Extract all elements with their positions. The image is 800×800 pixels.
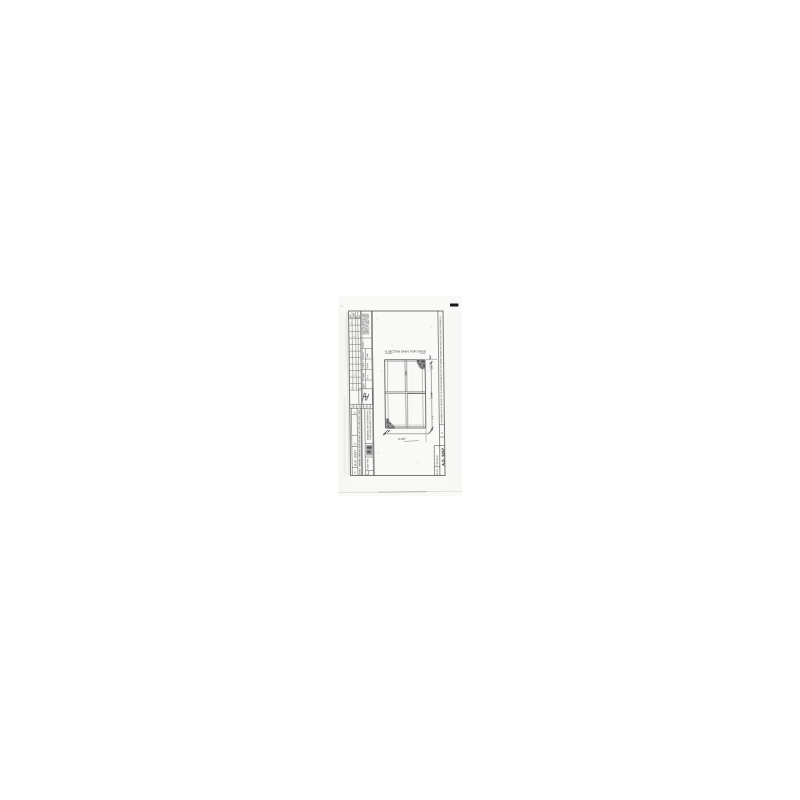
svg-text:TEAK: TEAK: [366, 353, 369, 358]
svg-text:DATE: DATE: [353, 312, 356, 318]
svg-text:SASH: SASH: [362, 382, 365, 388]
svg-text:No 2: No 2: [367, 375, 369, 379]
svg-text:3′-6⅜″: 3′-6⅜″: [431, 392, 434, 399]
svg-text:SCALE FULL: SCALE FULL: [366, 458, 369, 469]
svg-text:½ SECTION SASH, FOR STAGE: ½ SECTION SASH, FOR STAGE: [385, 350, 426, 354]
svg-text:A.S. 3267: A.S. 3267: [353, 449, 357, 466]
svg-text:7: 7: [351, 349, 353, 350]
svg-text:NO: NO: [359, 315, 361, 319]
svg-text:WOOD: WOOD: [363, 352, 365, 358]
svg-text:34 328: 34 328: [437, 469, 439, 475]
svg-text:GLASS: GLASS: [362, 362, 365, 369]
svg-text:CHA 346 43: CHA 346 43: [436, 455, 439, 465]
svg-text:PLATE: PLATE: [366, 362, 369, 368]
svg-text:3: 3: [354, 375, 356, 376]
svg-text:3⅛: 3⅛: [432, 366, 434, 369]
svg-text:FINISH: FINISH: [363, 341, 365, 348]
svg-text:9: 9: [351, 388, 353, 389]
svg-text:A.S. 3267: A.S. 3267: [441, 448, 445, 466]
svg-text:1: 1: [354, 336, 356, 337]
svg-text:2: 2: [357, 362, 359, 363]
svg-text:4′-0¾″: 4′-0¾″: [398, 437, 406, 441]
svg-text:FRAME: FRAME: [362, 372, 365, 379]
svg-text:4: 4: [350, 323, 352, 324]
svg-text:DERBY: DERBY: [360, 467, 362, 475]
svg-text:FOR No 2 SASH ONLY: FOR No 2 SASH ONLY: [367, 313, 370, 335]
svg-text:LONDON MIDLAND AND SCOTTISH RY: LONDON MIDLAND AND SCOTTISH RY: [369, 408, 372, 440]
